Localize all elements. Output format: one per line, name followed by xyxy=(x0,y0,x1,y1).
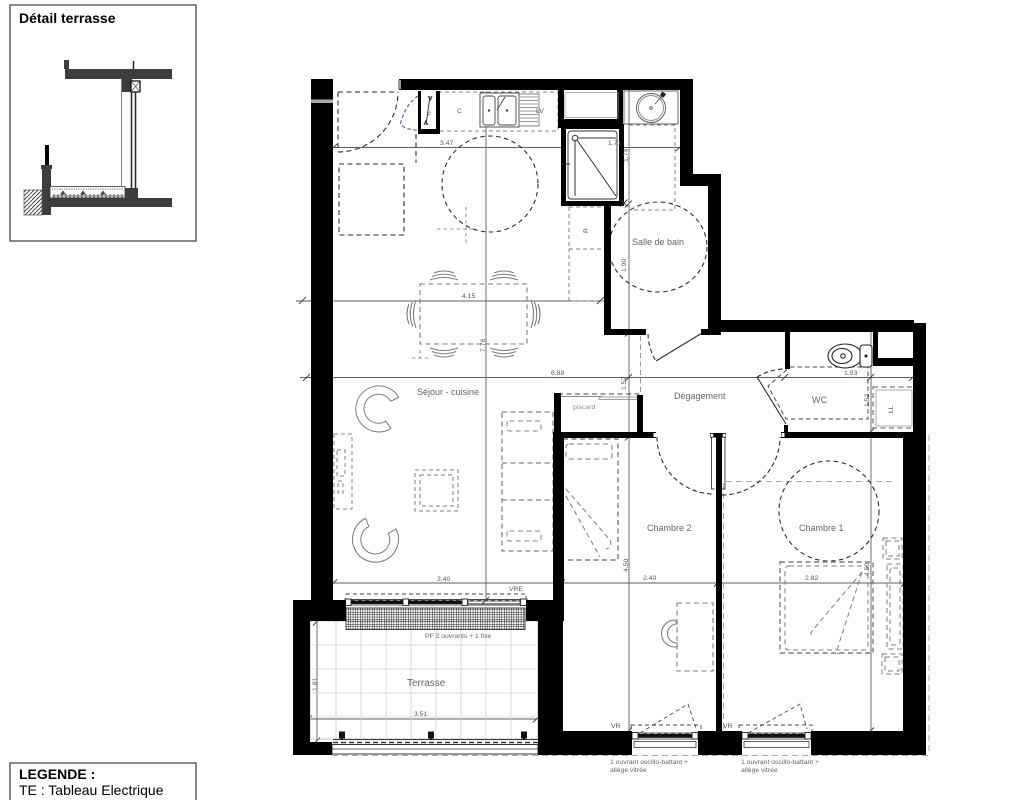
svg-text:allège vitrée: allège vitrée xyxy=(610,767,647,774)
svg-text:LV: LV xyxy=(536,108,544,115)
svg-text:4.50: 4.50 xyxy=(623,559,630,572)
svg-text:4.50: 4.50 xyxy=(864,563,871,576)
svg-text:1.52: 1.52 xyxy=(621,377,628,390)
svg-text:2.82: 2.82 xyxy=(805,575,818,582)
svg-text:placard: placard xyxy=(573,404,596,411)
svg-text:PF 2 ouvrants + 1 fixe: PF 2 ouvrants + 1 fixe xyxy=(425,633,492,640)
svg-text:VRE: VRE xyxy=(509,586,523,593)
svg-text:Dégagement: Dégagement xyxy=(674,391,726,401)
svg-text:Chambre 2: Chambre 2 xyxy=(647,523,692,533)
svg-text:7.76: 7.76 xyxy=(480,339,487,352)
svg-text:Terrasse: Terrasse xyxy=(407,678,446,689)
svg-text:Salle de bain: Salle de bain xyxy=(632,237,684,247)
svg-text:1.74: 1.74 xyxy=(623,149,630,162)
svg-text:WC: WC xyxy=(812,395,827,405)
svg-text:1.90: 1.90 xyxy=(621,259,628,272)
svg-text:LEGENDE :: LEGENDE : xyxy=(19,766,95,782)
svg-text:3.47: 3.47 xyxy=(440,140,453,147)
svg-text:TE: TE xyxy=(427,110,432,116)
svg-text:LL: LL xyxy=(888,405,895,413)
svg-text:1.71: 1.71 xyxy=(608,140,621,147)
svg-text:allège vitrée: allège vitrée xyxy=(741,767,778,774)
svg-text:1 ouvrant oscillo-battant +: 1 ouvrant oscillo-battant + xyxy=(741,759,819,766)
svg-text:6.88: 6.88 xyxy=(551,370,564,377)
svg-text:R: R xyxy=(583,228,590,233)
svg-text:Séjour - cuisine: Séjour - cuisine xyxy=(417,387,479,397)
svg-text:Chambre 1: Chambre 1 xyxy=(799,523,844,533)
svg-text:3.51: 3.51 xyxy=(414,711,427,718)
svg-text:VR: VR xyxy=(723,723,733,730)
svg-text:2.40: 2.40 xyxy=(643,575,656,582)
svg-text:1 ouvrant oscillo-battant +: 1 ouvrant oscillo-battant + xyxy=(610,759,688,766)
svg-text:3.40: 3.40 xyxy=(437,576,450,583)
svg-text:TE : Tableau Electrique: TE : Tableau Electrique xyxy=(19,782,164,798)
svg-text:1.52: 1.52 xyxy=(864,394,871,407)
svg-text:Détail terrasse: Détail terrasse xyxy=(19,10,116,26)
svg-text:1.81: 1.81 xyxy=(312,678,319,691)
svg-text:1.93: 1.93 xyxy=(844,370,857,377)
svg-text:VR: VR xyxy=(611,723,621,730)
svg-text:4.15: 4.15 xyxy=(462,293,475,300)
svg-text:C: C xyxy=(457,108,462,115)
